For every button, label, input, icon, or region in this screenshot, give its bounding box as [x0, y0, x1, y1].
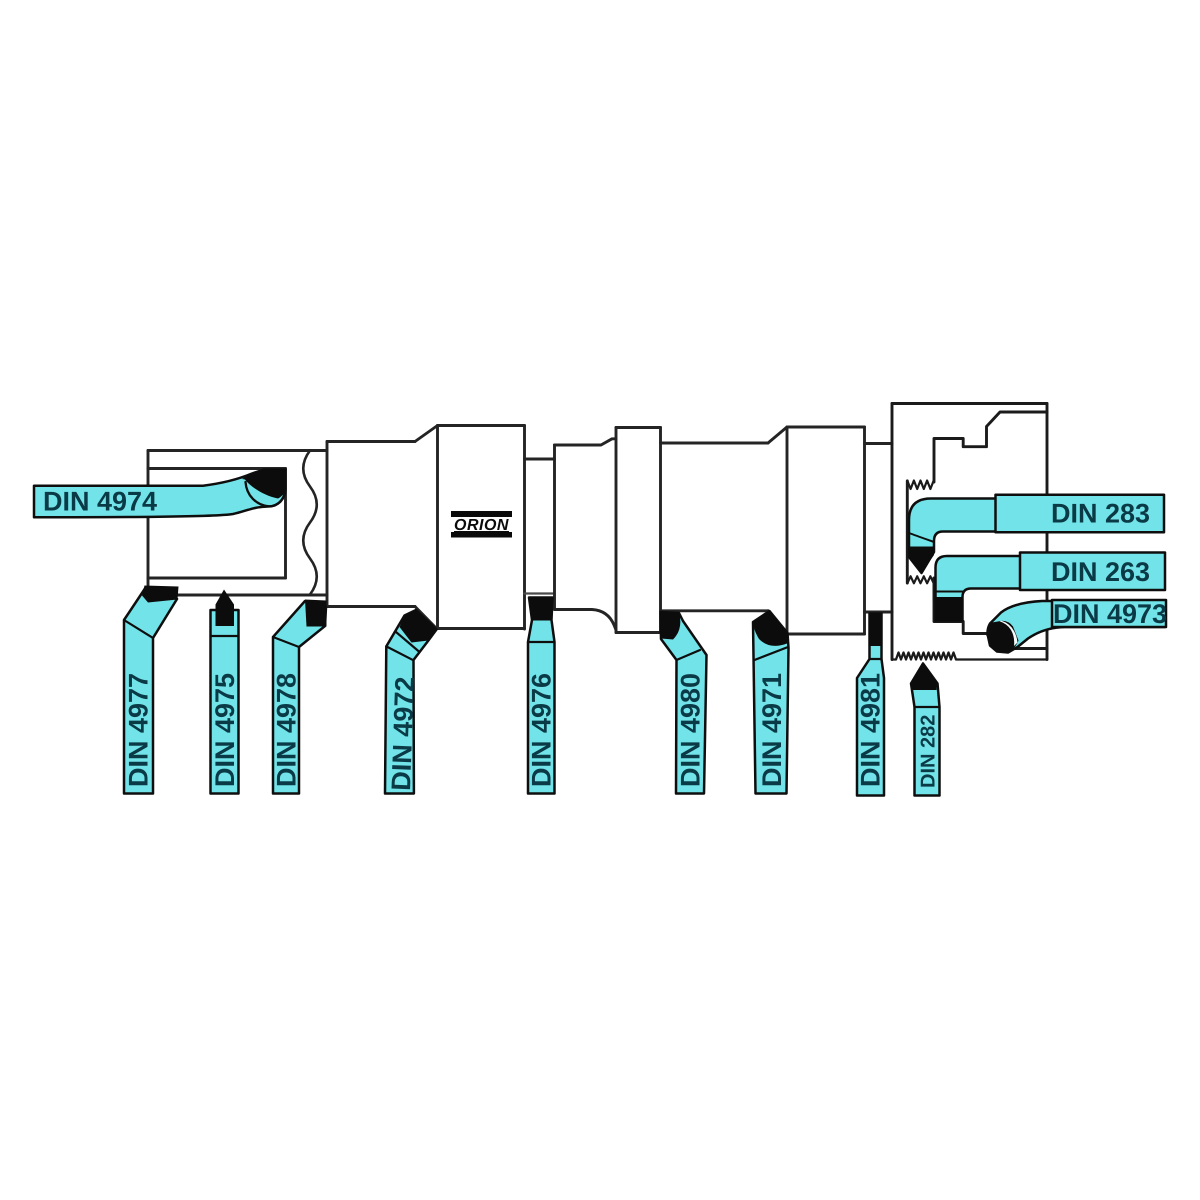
svg-text:DIN 4975: DIN 4975	[210, 673, 240, 787]
svg-text:DIN 282: DIN 282	[918, 715, 940, 788]
svg-text:DIN 263: DIN 263	[1051, 557, 1150, 587]
svg-text:DIN 4978: DIN 4978	[272, 673, 302, 787]
svg-text:DIN 283: DIN 283	[1051, 499, 1150, 529]
svg-text:DIN 4972: DIN 4972	[386, 676, 420, 791]
svg-text:DIN 4973: DIN 4973	[1053, 599, 1167, 629]
svg-text:ORION: ORION	[454, 517, 509, 534]
svg-text:DIN 4974: DIN 4974	[43, 487, 157, 517]
svg-text:DIN 4971: DIN 4971	[757, 673, 787, 787]
svg-text:DIN 4981: DIN 4981	[856, 673, 886, 787]
svg-text:DIN 4980: DIN 4980	[676, 673, 706, 787]
svg-text:DIN 4977: DIN 4977	[124, 673, 154, 787]
svg-text:DIN 4976: DIN 4976	[527, 673, 557, 787]
